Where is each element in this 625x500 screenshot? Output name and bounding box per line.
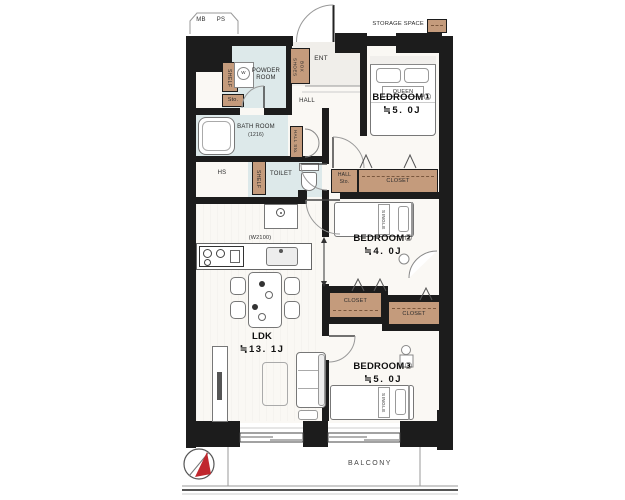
hall-sto-vertical-label: HALL Sto.	[293, 128, 298, 156]
rug	[262, 362, 288, 406]
shelf-lower-label: SHELF	[255, 166, 261, 192]
closet-bedroom2-label: CLOSET	[329, 298, 382, 305]
shelf-upper-label: SHELF	[226, 65, 232, 91]
burner-2	[216, 249, 225, 258]
bedroom1-title: BEDROOM①	[352, 92, 452, 103]
burner-3	[204, 259, 211, 266]
sofa-seat-line1	[298, 370, 318, 371]
bathtub-inner	[202, 121, 231, 151]
burner-1	[203, 249, 212, 258]
mb-label: MB	[193, 17, 209, 24]
queen-pillow-left	[376, 68, 401, 83]
bath-room-label: BATH ROOM	[232, 124, 280, 131]
kitchen-width-label: (W2100)	[238, 235, 282, 242]
hall-sto-label: HALL Sto.	[331, 172, 358, 185]
powder-room-label: POWDER ROOM	[244, 68, 288, 82]
floor-plan: MB PS STORAGE SPACE ENT SHOES BOX HALL P…	[0, 0, 625, 500]
wall-below-powder-a	[196, 108, 240, 115]
pillar-bottom-right	[400, 421, 440, 447]
tv	[217, 372, 222, 400]
queen-bed-headboard	[370, 56, 436, 65]
storage-space-label: STORAGE SPACE	[366, 21, 424, 28]
pillar-bottom-left	[186, 421, 240, 447]
wall-closet3-bottom	[382, 325, 440, 331]
refrigerator-mark-dot	[280, 212, 282, 214]
wall-bedroom1-left	[360, 36, 367, 136]
toilet-label: TOILET	[264, 171, 298, 178]
closet-bedroom1-label: CLOSET	[358, 178, 438, 185]
sliding-window-bedroom3	[328, 433, 400, 442]
pillar-top-right	[396, 33, 442, 53]
bedroom3-title: BEDROOM③	[333, 361, 433, 372]
plate-1	[259, 281, 265, 287]
wall-hall-right-upper	[322, 108, 329, 164]
compass-north-arrow	[195, 452, 211, 477]
sliding-window-ldk	[240, 433, 303, 442]
single2-pillow	[398, 206, 409, 232]
sofa-seat-line2	[298, 388, 318, 389]
queen-pillow-right	[404, 68, 429, 83]
chair-top-right	[284, 277, 300, 295]
ottoman	[298, 410, 318, 420]
toilet-tank	[299, 163, 319, 171]
bedroom1-size: ≒5. 0J	[352, 105, 452, 116]
cup-2	[258, 313, 266, 321]
bedroom3-size: ≒5. 0J	[333, 374, 433, 385]
chair-bottom-left	[230, 301, 246, 319]
ps-label: PS	[213, 17, 229, 24]
single3-headboard	[408, 385, 410, 420]
wall-hall-right-mid	[322, 190, 329, 237]
wall-closet2-bottom	[322, 318, 386, 324]
washer-label: W	[237, 70, 250, 75]
compass-needle-line	[189, 452, 209, 476]
single3-bed-label: SINGLE	[381, 390, 386, 416]
balcony-label: BALCONY	[330, 460, 410, 468]
bath-size-label: (1216)	[232, 132, 280, 138]
ent-label: ENT	[308, 55, 334, 63]
ldk-size: ≒13. 1J	[222, 344, 302, 355]
wall-bedroom1-2-divider	[340, 192, 453, 199]
closet-bed3-label: CLOSET	[388, 311, 440, 318]
shoes-box-label: SHOES BOX	[291, 51, 309, 83]
bedroom2-size: ≒4. 0J	[333, 246, 433, 257]
single2-bed-label: SINGLE	[381, 207, 386, 233]
pillar-bottom-middle	[303, 421, 328, 447]
sto-label: Sto.	[222, 97, 244, 104]
wall-ldk-top	[186, 197, 298, 204]
cup-1	[265, 291, 273, 299]
pillar-corner-bottom-right	[437, 410, 453, 450]
closet-bedroom2-box	[329, 292, 382, 318]
chair-bottom-right	[284, 301, 300, 319]
sofa-back	[318, 354, 325, 406]
ldk-title: LDK	[232, 331, 292, 342]
sliding-window-bedroom3-sash	[329, 437, 399, 440]
sliding-window-ldk-sash	[241, 437, 302, 440]
hall-label: HALL	[292, 98, 322, 105]
wall-left	[186, 36, 196, 448]
bedroom2-title: BEDROOM②	[333, 233, 433, 244]
entrance-door-arc	[297, 5, 334, 42]
chair-top-left	[230, 277, 246, 295]
toilet-bowl	[301, 172, 317, 191]
compass-circle	[184, 449, 214, 479]
plate-2	[252, 304, 258, 310]
wall-below-powder-b	[264, 108, 292, 115]
storage-space-box	[427, 19, 447, 33]
grill	[230, 250, 240, 263]
faucet	[279, 249, 283, 253]
single3-pillow	[395, 389, 406, 415]
hs-label: HS	[208, 170, 236, 177]
wall-jamb-ldk-door	[298, 190, 307, 204]
single2-headboard	[411, 202, 413, 237]
